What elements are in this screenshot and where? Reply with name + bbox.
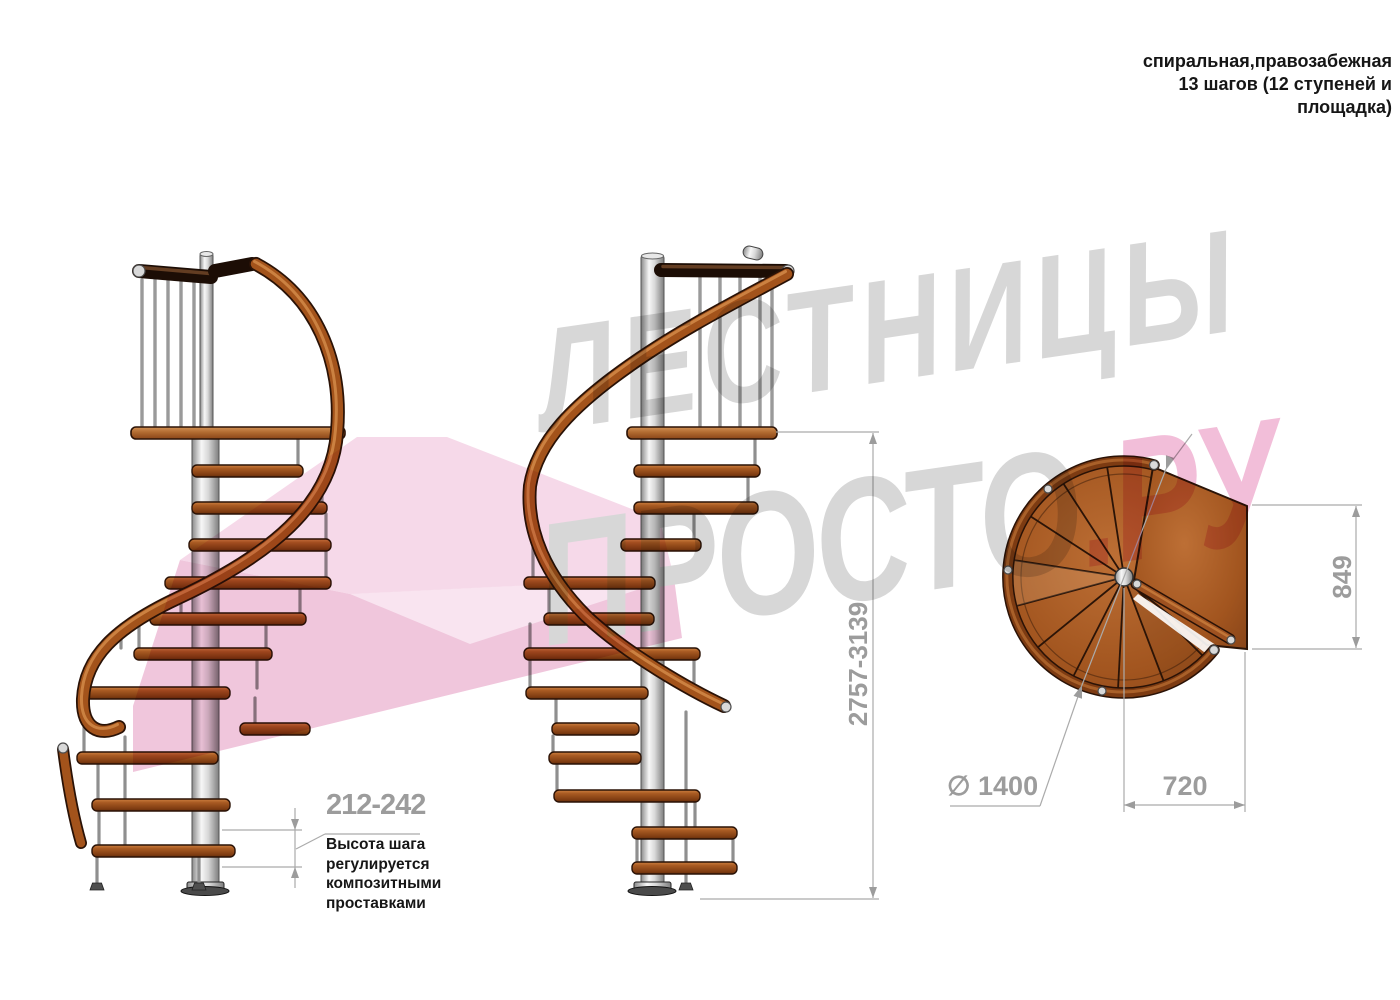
technical-drawing-canvas: ЛЕСТНИЦЫ ПРОСТО.РУ спиральная,правозабеж… <box>0 0 1400 1000</box>
staircase-side-view-right <box>524 245 794 896</box>
note-line-2: регулируется <box>326 855 441 875</box>
dimension-step-height-note: Высота шага регулируется композитными пр… <box>326 835 441 913</box>
staircase-top-view <box>1004 460 1247 695</box>
staircase-side-view-left <box>58 252 345 896</box>
note-line-4: проставками <box>326 894 441 914</box>
staircase-drawing <box>0 0 1400 1000</box>
dimension-diameter: ∅ 1400 <box>947 771 1038 802</box>
title-line-1: спиральная,правозабежная <box>1143 50 1392 73</box>
dimension-step-height: 212-242 <box>326 789 425 822</box>
note-line-1: Высота шага <box>326 835 441 855</box>
dimension-platform-width: 720 <box>1149 771 1221 801</box>
title-line-3: площадка) <box>1143 96 1392 119</box>
title-line-2: 13 шагов (12 ступеней и <box>1143 73 1392 96</box>
drawing-title: спиральная,правозабежная 13 шагов (12 ст… <box>1143 50 1392 119</box>
dimension-platform-depth: 849 <box>1327 537 1357 617</box>
left-platform-railing <box>133 258 262 428</box>
dimension-total-height: 2757-3139 <box>842 594 874 734</box>
note-line-3: композитными <box>326 874 441 894</box>
